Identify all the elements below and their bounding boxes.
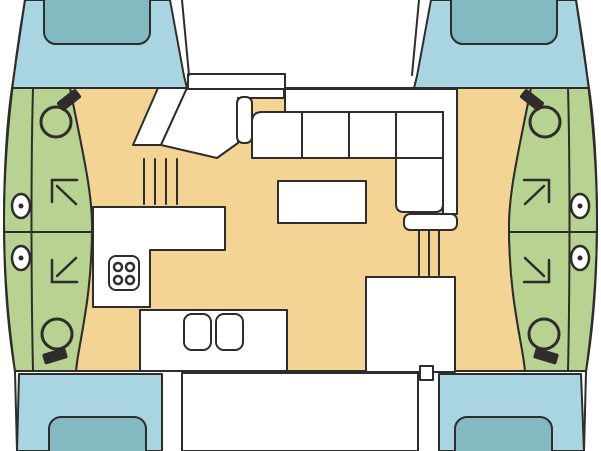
porthole-icon <box>12 246 30 270</box>
burner-icon <box>114 263 122 271</box>
starboard-hull <box>509 88 597 371</box>
coachroof-front-band <box>188 74 285 89</box>
port-hull <box>4 88 92 371</box>
burner-icon <box>114 276 122 284</box>
trampoline-edge-port <box>182 0 189 75</box>
starboard-hull-shape <box>509 88 597 371</box>
sink-counter <box>140 310 287 371</box>
sofa-seats <box>252 112 443 158</box>
chart-table <box>366 277 455 372</box>
sink-basin-icon <box>184 314 211 350</box>
deck-hatch-icon <box>451 0 557 44</box>
sink-basin-icon <box>216 314 243 350</box>
sofa-corner-section <box>396 158 443 212</box>
catamaran-floorplan <box>0 0 601 451</box>
stairs-landing <box>404 214 457 230</box>
floorplan-svg <box>0 0 601 451</box>
dinette-table <box>278 181 366 223</box>
deck-hatch-icon <box>455 417 552 451</box>
stove-icon <box>109 256 139 290</box>
trampoline-edge-starboard <box>412 0 419 75</box>
sofa-armrest <box>237 97 252 143</box>
cockpit <box>182 373 418 451</box>
burner-icon <box>126 276 134 284</box>
port-hull-shape <box>4 88 92 371</box>
porthole-icon <box>12 194 30 218</box>
salon-door <box>420 366 433 380</box>
deck-hatch-icon <box>49 417 146 451</box>
deck-hatch-icon <box>44 0 150 44</box>
burner-icon <box>126 263 134 271</box>
porthole-icon <box>571 246 589 270</box>
porthole-icon <box>571 194 589 218</box>
